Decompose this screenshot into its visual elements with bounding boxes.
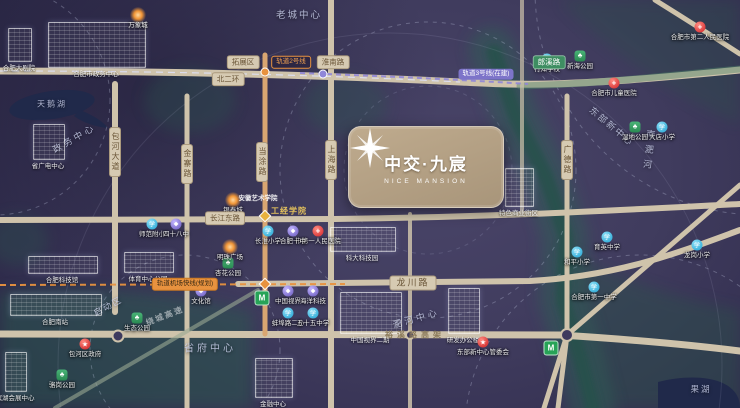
compass-star-icon [349, 127, 391, 169]
hospital-icon: + [313, 226, 324, 237]
park-icon: ♣ [132, 313, 143, 324]
building-label: 特色商业街区 [499, 207, 538, 217]
building-label: 合肥科技馆 [46, 274, 79, 284]
building-illustration [10, 294, 102, 316]
building-label: 合肥市政务中心 [73, 68, 119, 78]
poi-label: 东部新中心管委会 [423, 349, 543, 357]
building-illustration [448, 288, 480, 334]
poi-label: 合肥市儿童医院 [554, 90, 674, 98]
building-illustration [505, 168, 534, 207]
poi-label: 文化馆 [141, 298, 261, 306]
poi-label: 湿地公园 [575, 134, 695, 142]
road-name-pill: 龙川路 [389, 276, 436, 291]
project-logo-card: 中交·九宸 NICE MANSION [348, 126, 504, 208]
poi-label: 生态公园 [77, 325, 197, 333]
road-name-pill: 北二环 [212, 72, 245, 86]
park-icon: ♣ [630, 122, 641, 133]
building-illustration [124, 252, 174, 273]
school-icon: 学 [692, 240, 703, 251]
poi-label: 和平小学 [517, 259, 637, 267]
road-name-pill: 拓展区 [227, 55, 260, 69]
plaza-icon [222, 239, 238, 255]
location-map: 中交·九宸 NICE MANSION 老城中心政务中心省府中心启动区淝河中心东部… [0, 0, 740, 408]
landmark-icon: ◆ [308, 286, 319, 297]
region-label: 老城中心 [276, 7, 322, 21]
poi-label: 龙岗小学 [637, 252, 740, 260]
metro-station-marker [259, 278, 270, 289]
gov-icon: ★ [478, 337, 489, 348]
road-text-label: 裕溪路高架 [385, 330, 445, 341]
building-label: 省广电中心 [32, 160, 65, 170]
roundabout [561, 329, 573, 341]
metro-icon: M [255, 291, 270, 306]
gov-icon: ★ [80, 339, 91, 350]
building-label: 科大科技园 [346, 252, 379, 262]
road-name-pill: 广德路 [561, 140, 573, 180]
park-icon: ♣ [575, 51, 586, 62]
metro-station-marker [261, 68, 269, 76]
region-label: 天鹅湖 [37, 99, 67, 110]
road-name-pill: 包河大道 [109, 127, 121, 177]
school-icon: 学 [657, 122, 668, 133]
school-icon: 学 [263, 226, 274, 237]
poi-label: 骆岗公园 [2, 382, 122, 390]
poi-label: 四十八中 [116, 231, 236, 239]
building-label: 金融中心 [260, 398, 286, 408]
project-name: 中交·九宸 [384, 150, 468, 175]
region-label: 果湖 [690, 383, 711, 395]
poi-label: 合肥市第二人民医院 [640, 34, 740, 42]
school-icon: 学 [602, 232, 613, 243]
project-name-en: NICE MANSION [384, 178, 468, 185]
landmark-icon: ◆ [288, 226, 299, 237]
road-name-pill: 郎溪路 [533, 55, 566, 69]
road-name-pill: 轨道机场快线(规划) [152, 278, 218, 291]
building-label: 合肥南站 [42, 316, 68, 326]
road-text-label: 安徽艺术学院 [239, 192, 278, 202]
poi-label: 包河区政府 [25, 351, 145, 359]
building-label: 研发办公楼 [447, 334, 480, 344]
road-name-pill: 当涂路 [256, 142, 268, 182]
school-icon: 学 [308, 308, 319, 319]
school-icon: 学 [589, 282, 600, 293]
building-illustration [8, 28, 32, 62]
poi-label: 明珠广场 [170, 254, 290, 262]
metro-station-marker [319, 70, 327, 78]
school-icon: 学 [283, 308, 294, 319]
building-illustration [28, 256, 98, 274]
road-name-pill: 金寨路 [181, 144, 193, 184]
region-label: 省府中心 [184, 340, 236, 355]
plaza-icon [130, 7, 146, 23]
park-icon: ♣ [57, 370, 68, 381]
landmark-icon: ◆ [283, 286, 294, 297]
poi-label: 五十五中学 [253, 320, 373, 328]
poi-label: 万象城 [78, 22, 198, 30]
metro-icon: M [544, 341, 559, 356]
road-name-pill: 轨道2号线 [271, 56, 311, 69]
landmark-icon: ◆ [171, 219, 182, 230]
poi-label: 海洋科技 [253, 298, 373, 306]
building-label: 中国视界二期 [351, 334, 390, 344]
hospital-icon: + [609, 78, 620, 89]
road-text-label: 工经学院 [271, 206, 307, 217]
building-label: 合肥大剧院 [3, 62, 36, 72]
building-illustration [33, 124, 65, 160]
hospital-icon: + [695, 22, 706, 33]
road-name-pill: 淮南路 [317, 55, 350, 69]
school-icon: 学 [147, 219, 158, 230]
road-name-pill: 轨道3号线(在建) [459, 69, 514, 80]
building-illustration [255, 358, 293, 398]
road-name-pill: 上海路 [325, 140, 337, 180]
school-icon: 学 [572, 247, 583, 258]
poi-label: 合肥市第一中学 [534, 294, 654, 302]
poi-label: 合肥十中 [233, 238, 353, 246]
road-name-pill: 长江东路 [205, 211, 245, 225]
building-label: 滨湖会展中心 [0, 392, 35, 402]
